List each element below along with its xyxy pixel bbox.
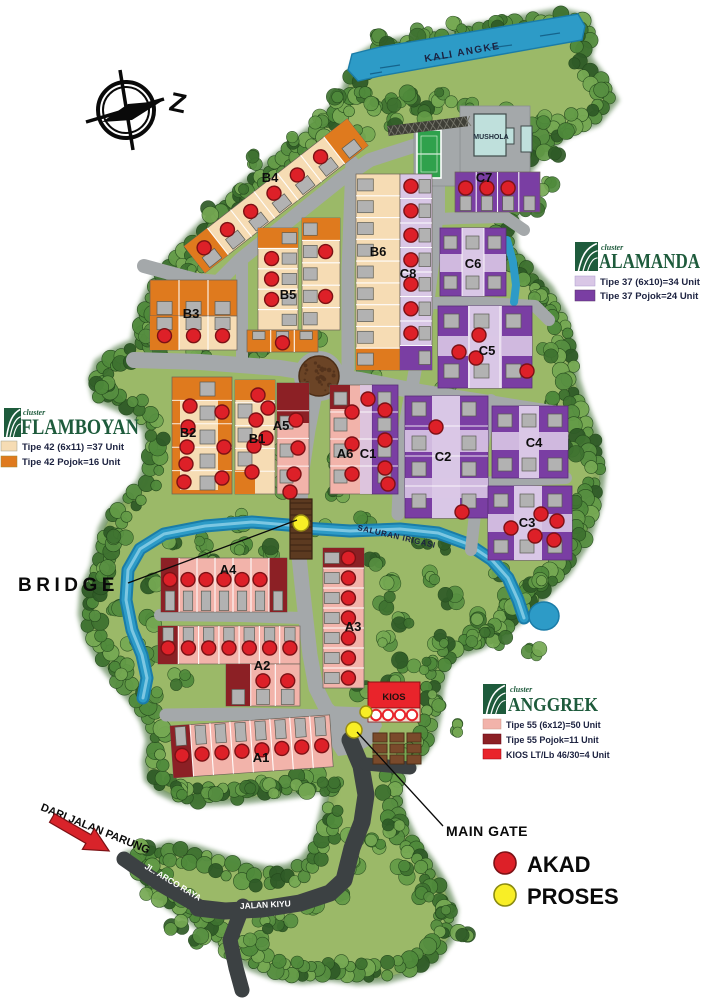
svg-text:AKAD: AKAD (527, 852, 591, 877)
svg-text:A3: A3 (345, 619, 362, 634)
svg-text:KIOS: KIOS (382, 692, 405, 703)
svg-text:C8: C8 (400, 266, 417, 281)
svg-text:ALAMANDA: ALAMANDA (599, 249, 701, 273)
svg-text:C4: C4 (526, 435, 543, 450)
svg-text:B3: B3 (183, 306, 200, 321)
svg-text:cluster: cluster (510, 685, 533, 694)
svg-text:C5: C5 (479, 343, 496, 358)
svg-text:MAIN GATE: MAIN GATE (446, 823, 528, 839)
svg-text:C1: C1 (360, 446, 377, 461)
svg-text:BRIDGE: BRIDGE (18, 575, 119, 596)
svg-text:B1: B1 (249, 431, 266, 446)
svg-text:C2: C2 (435, 449, 452, 464)
svg-text:B4: B4 (262, 170, 279, 185)
svg-text:ANGGREK: ANGGREK (508, 694, 598, 716)
svg-text:C3: C3 (519, 515, 536, 530)
svg-text:B2: B2 (180, 425, 197, 440)
svg-text:B6: B6 (370, 244, 387, 259)
svg-text:A6: A6 (337, 446, 354, 461)
svg-text:Tipe 55 Pojok=11 Unit: Tipe 55 Pojok=11 Unit (506, 735, 599, 745)
svg-text:Tipe 55 (6x12)=50 Unit: Tipe 55 (6x12)=50 Unit (506, 720, 601, 730)
svg-text:Tipe 37 Pojok=24 Unit: Tipe 37 Pojok=24 Unit (600, 291, 699, 302)
svg-text:FLAMBOYAN: FLAMBOYAN (21, 414, 139, 439)
svg-text:PROSES: PROSES (527, 884, 619, 909)
svg-text:Tipe 42 (6x11) =37 Unit: Tipe 42 (6x11) =37 Unit (22, 442, 125, 453)
svg-text:A1: A1 (253, 750, 270, 765)
svg-text:B5: B5 (280, 287, 297, 302)
svg-text:A4: A4 (220, 562, 237, 577)
svg-text:A2: A2 (254, 658, 271, 673)
svg-text:Tipe 42 Pojok=16 Unit: Tipe 42 Pojok=16 Unit (22, 457, 121, 468)
svg-text:C7: C7 (476, 170, 493, 185)
svg-text:MUSHOLA: MUSHOLA (473, 134, 508, 141)
svg-text:C6: C6 (465, 256, 482, 271)
svg-text:A5: A5 (273, 418, 290, 433)
svg-text:KIOS LT/Lb 46/30=4 Unit: KIOS LT/Lb 46/30=4 Unit (506, 750, 610, 760)
svg-text:Tipe 37 (6x10)=34 Unit: Tipe 37 (6x10)=34 Unit (600, 277, 701, 288)
